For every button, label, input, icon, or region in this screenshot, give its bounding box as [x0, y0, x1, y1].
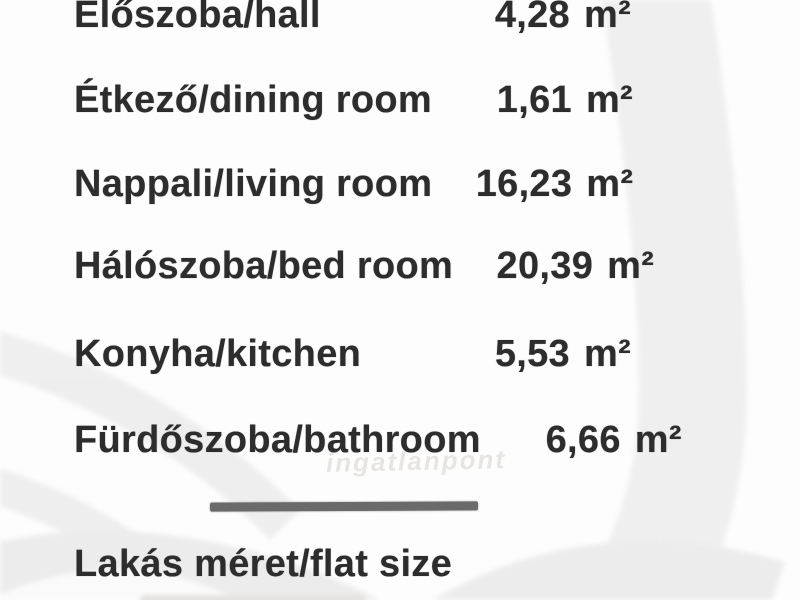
room-area-unit: m²	[572, 160, 670, 208]
room-row-bathroom: Fürdőszoba/bathroom 6,66 m²	[74, 416, 668, 464]
room-label: Étkező/dining room	[74, 76, 432, 124]
room-area-unit: m²	[570, 0, 668, 39]
room-area-unit: m²	[570, 330, 668, 378]
room-row-hall: Előszoba/hall 4,28 m²	[74, 0, 668, 39]
room-label: Nappali/living room	[74, 160, 432, 208]
total-divider-bar	[210, 501, 478, 511]
clipped-next-line	[140, 595, 365, 600]
room-area-listing-scan: ingatlanpont Előszoba/hall 4,28 m² Étkez…	[0, 0, 800, 600]
watermark-bottom-center-wedge	[425, 541, 785, 600]
flat-size-label: Lakás méret/flat size	[74, 540, 452, 588]
room-area-value: 20,39	[453, 242, 593, 290]
room-label: Hálószoba/bed room	[74, 242, 453, 290]
room-area-unit: m²	[572, 76, 670, 124]
room-area-value: 16,23	[432, 160, 572, 208]
room-row-living: Nappali/living room 16,23 m²	[74, 160, 668, 208]
room-row-bedroom: Hálószoba/bed room 20,39 m²	[74, 242, 668, 290]
room-label: Előszoba/hall	[74, 0, 321, 39]
room-label: Fürdőszoba/bathroom	[74, 416, 481, 464]
room-area-value: 6,66	[481, 416, 621, 464]
room-area-value: 4,28	[430, 0, 570, 39]
room-area-value: 5,53	[430, 330, 570, 378]
room-area-unit: m²	[593, 242, 691, 290]
room-area-unit: m²	[621, 416, 719, 464]
room-label: Konyha/kitchen	[74, 330, 361, 378]
room-row-kitchen: Konyha/kitchen 5,53 m²	[74, 330, 668, 378]
room-area-value: 1,61	[432, 76, 572, 124]
room-row-dining: Étkező/dining room 1,61 m²	[74, 76, 668, 124]
